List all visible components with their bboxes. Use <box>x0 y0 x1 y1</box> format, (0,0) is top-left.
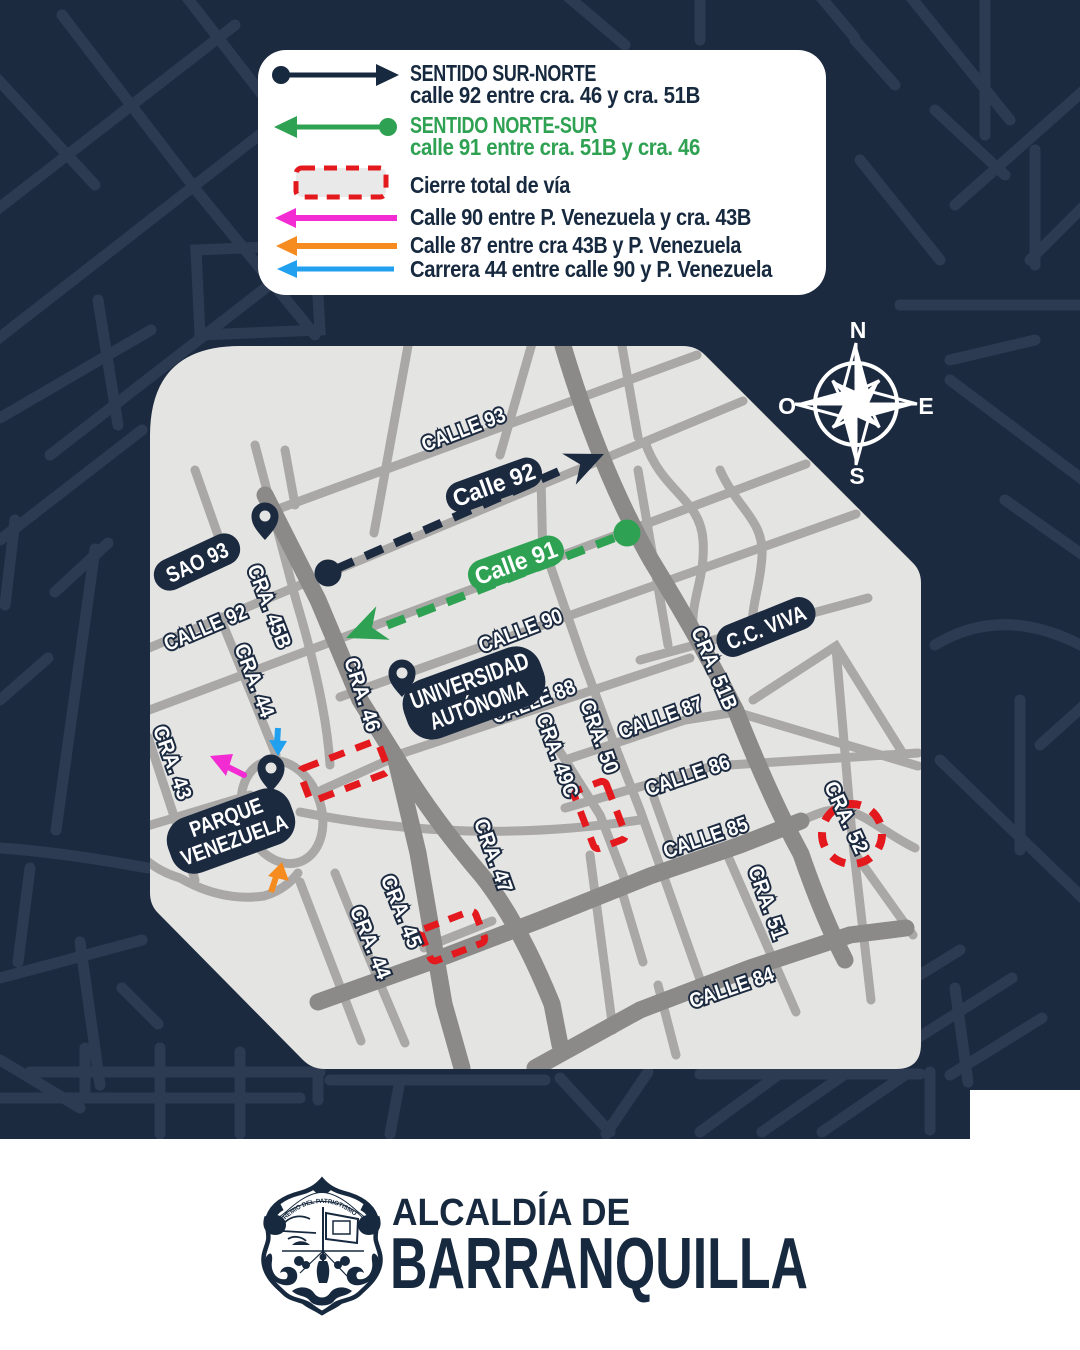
svg-text:E: E <box>918 393 933 419</box>
svg-text:calle 91 entre cra. 51B y cra.: calle 91 entre cra. 51B y cra. 46 <box>410 134 700 160</box>
svg-text:S: S <box>849 463 864 489</box>
svg-text:Carrera 44 entre calle 90 y P.: Carrera 44 entre calle 90 y P. Venezuela <box>410 256 773 282</box>
svg-text:calle 92 entre cra. 46 y cra.: calle 92 entre cra. 46 y cra. 51B <box>410 82 700 108</box>
svg-text:Calle 90 entre P. Venezuela y: Calle 90 entre P. Venezuela y cra. 43B <box>410 204 751 230</box>
svg-text:O: O <box>778 393 796 419</box>
svg-text:Calle 87 entre cra 43B y P. Ve: Calle 87 entre cra 43B y P. Venezuela <box>410 232 742 258</box>
svg-text:BARRANQUILLA: BARRANQUILLA <box>390 1224 808 1304</box>
svg-text:N: N <box>850 317 867 343</box>
svg-text:Cierre total de vía: Cierre total de vía <box>410 172 571 198</box>
